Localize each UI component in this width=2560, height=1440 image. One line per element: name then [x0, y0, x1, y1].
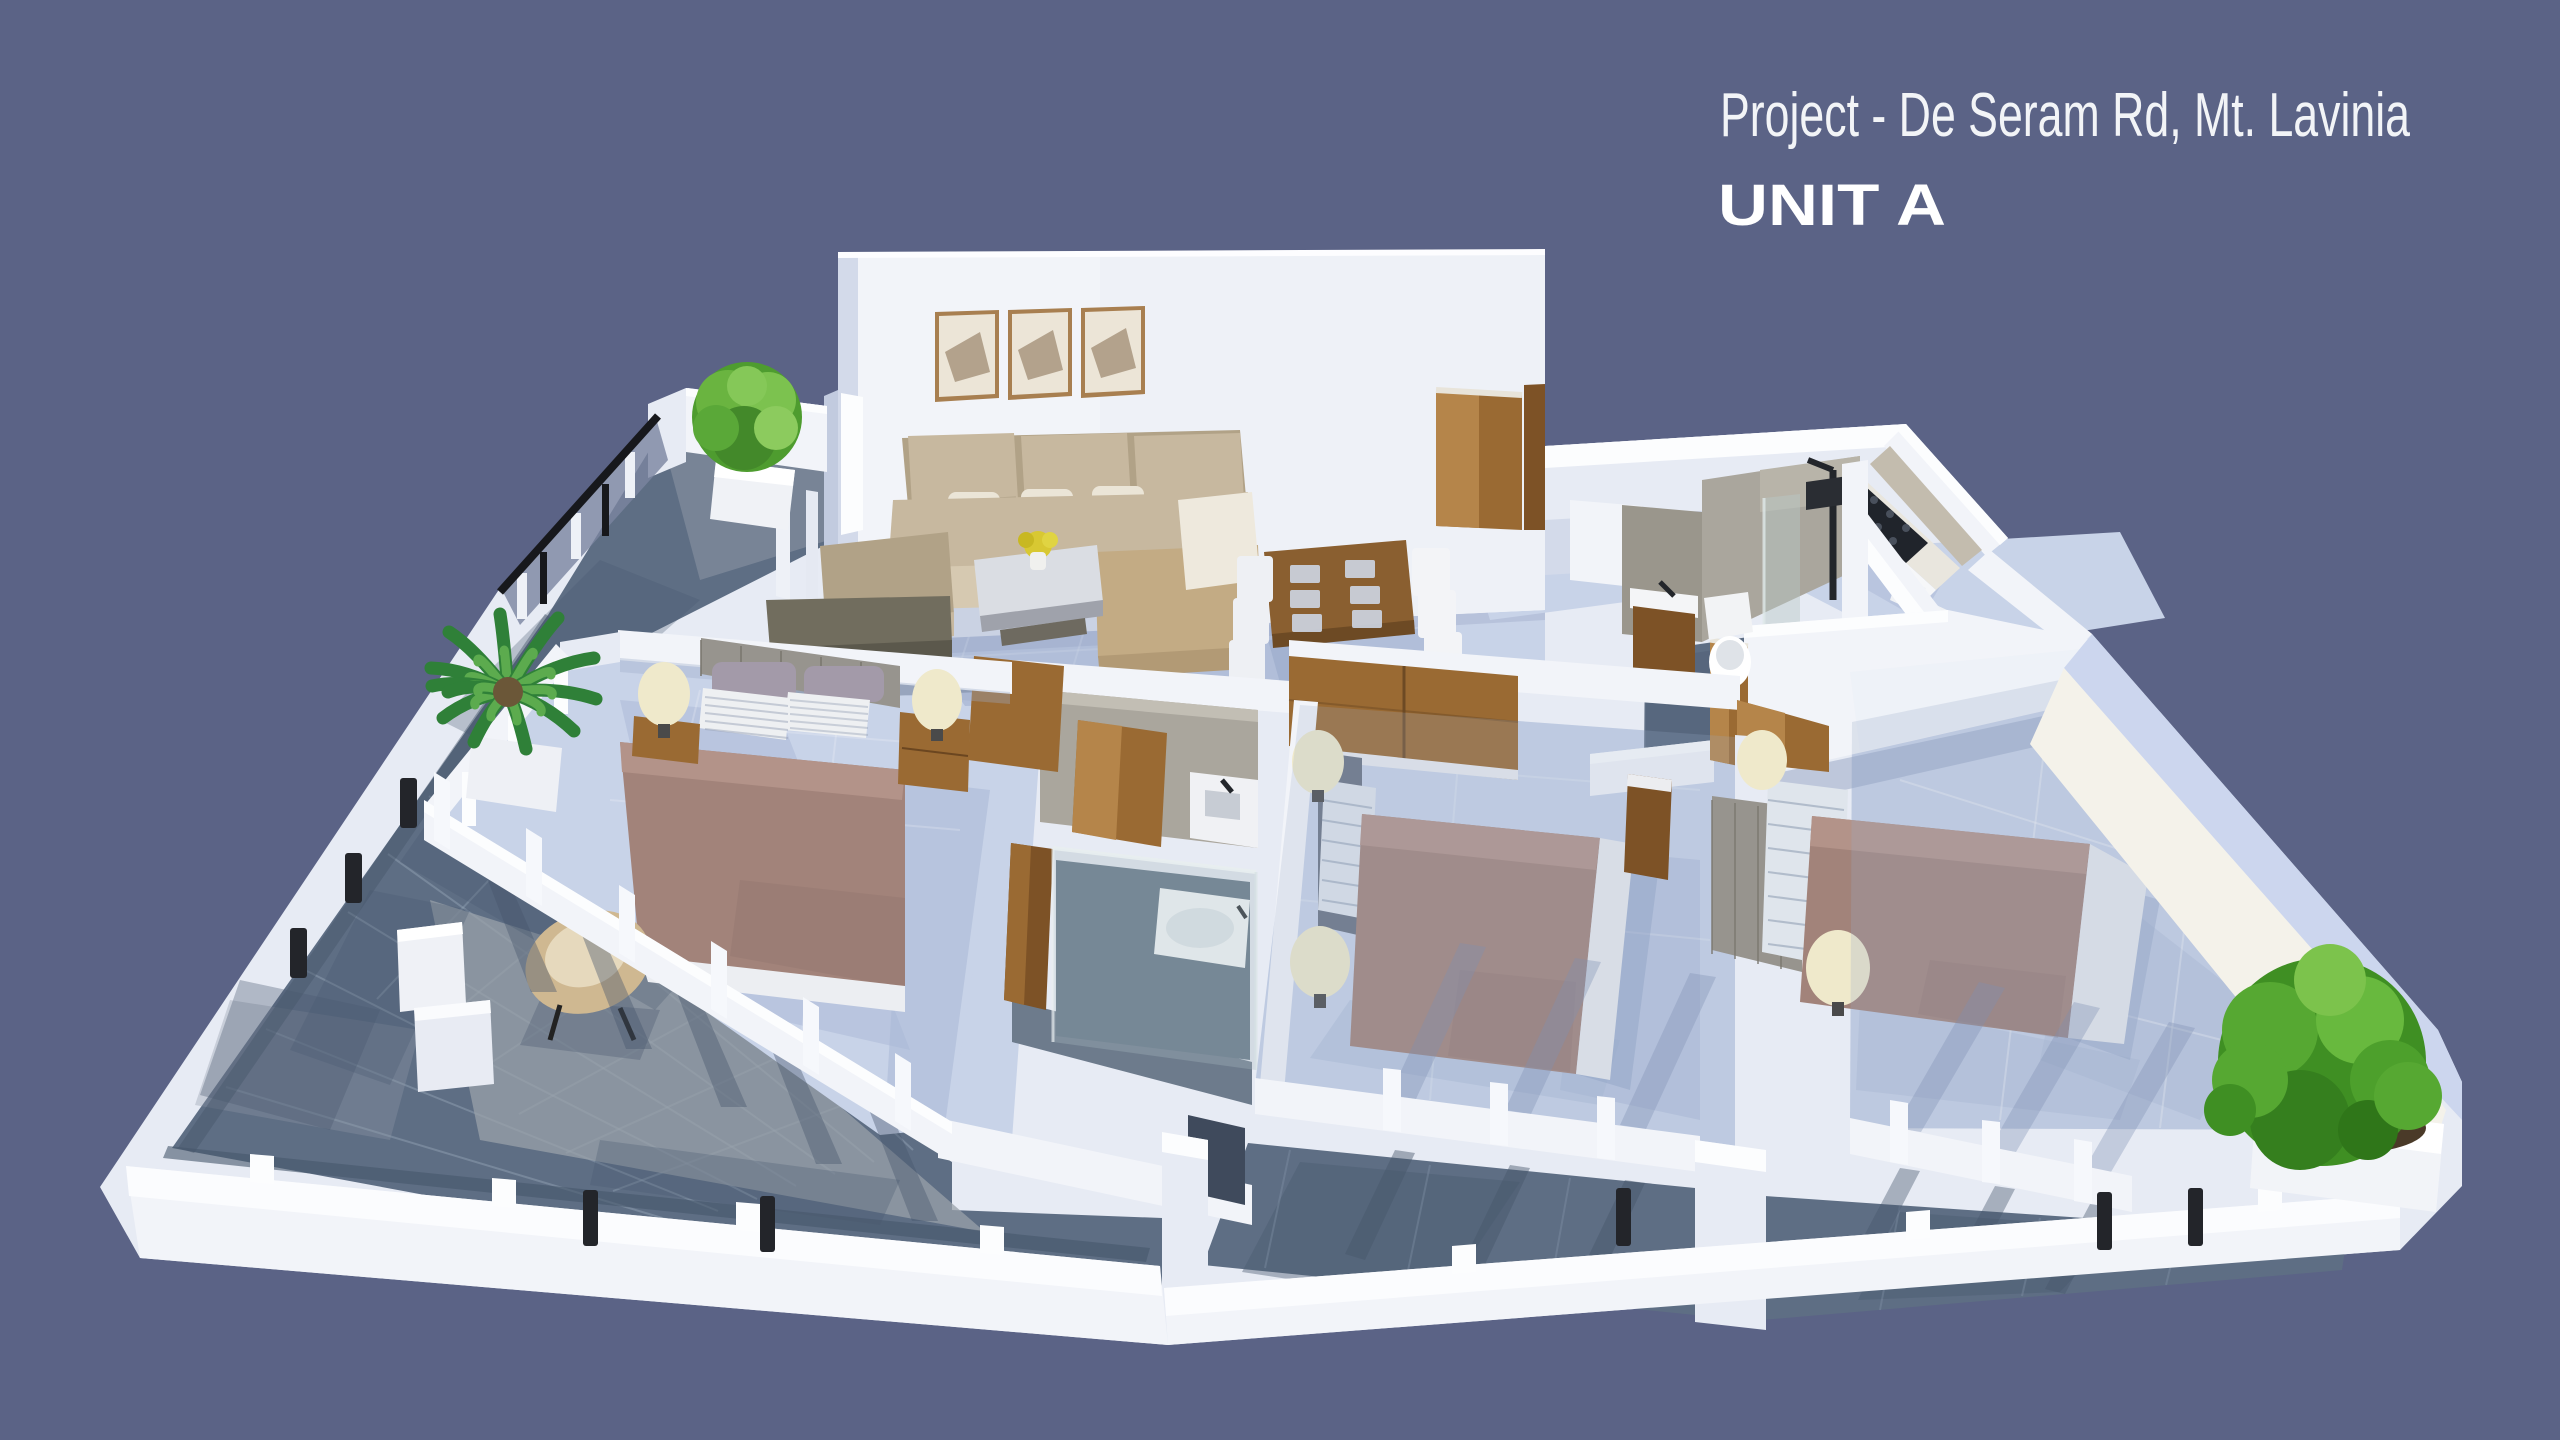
svg-text:UNIT A: UNIT A: [1718, 173, 1946, 238]
svg-text:Project - De Seram Rd, Mt. Lav: Project - De Seram Rd, Mt. Lavinia: [1720, 81, 2410, 150]
